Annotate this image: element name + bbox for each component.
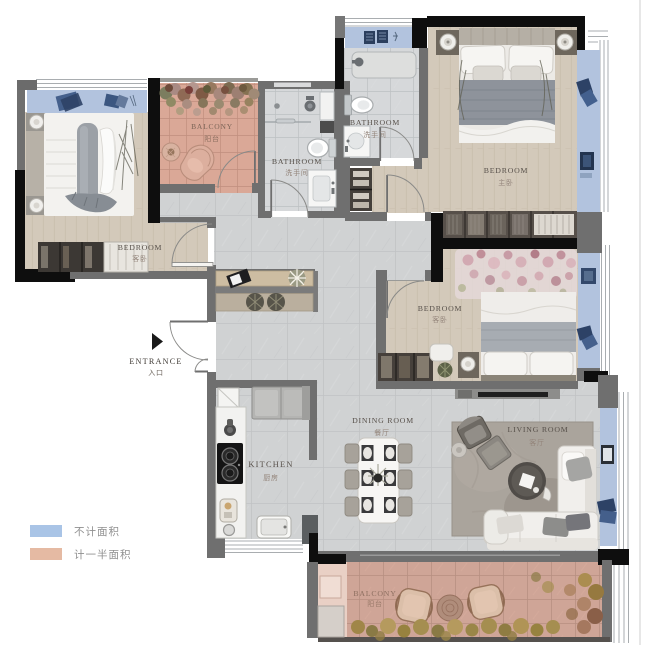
svg-text:BEDROOM: BEDROOM [418, 304, 463, 313]
svg-text:ENTRANCE: ENTRANCE [129, 357, 182, 366]
svg-text:LIVING ROOM: LIVING ROOM [508, 425, 569, 434]
svg-text:餐厅: 餐厅 [374, 428, 390, 437]
svg-text:DINING ROOM: DINING ROOM [352, 416, 414, 425]
svg-text:主卧: 主卧 [498, 178, 514, 187]
svg-text:阳台: 阳台 [367, 599, 383, 608]
svg-text:BATHROOM: BATHROOM [272, 157, 322, 166]
svg-text:BEDROOM: BEDROOM [118, 243, 163, 252]
svg-text:计一半面积: 计一半面积 [74, 548, 132, 561]
svg-text:客厅: 客厅 [529, 438, 545, 447]
svg-text:客卧: 客卧 [432, 315, 448, 324]
svg-text:BALCONY: BALCONY [353, 589, 396, 598]
svg-text:BATHROOM: BATHROOM [350, 118, 400, 127]
svg-text:KITCHEN: KITCHEN [248, 460, 293, 469]
svg-text:BALCONY: BALCONY [191, 122, 233, 131]
svg-text:阳台: 阳台 [204, 134, 220, 143]
svg-text:洗手间: 洗手间 [363, 130, 386, 139]
svg-text:厨房: 厨房 [263, 473, 279, 482]
svg-text:BEDROOM: BEDROOM [484, 166, 529, 175]
svg-text:客卧: 客卧 [132, 254, 148, 263]
svg-text:入口: 入口 [148, 369, 164, 377]
svg-text:不计面积: 不计面积 [74, 525, 120, 538]
svg-text:洗手间: 洗手间 [285, 168, 308, 177]
